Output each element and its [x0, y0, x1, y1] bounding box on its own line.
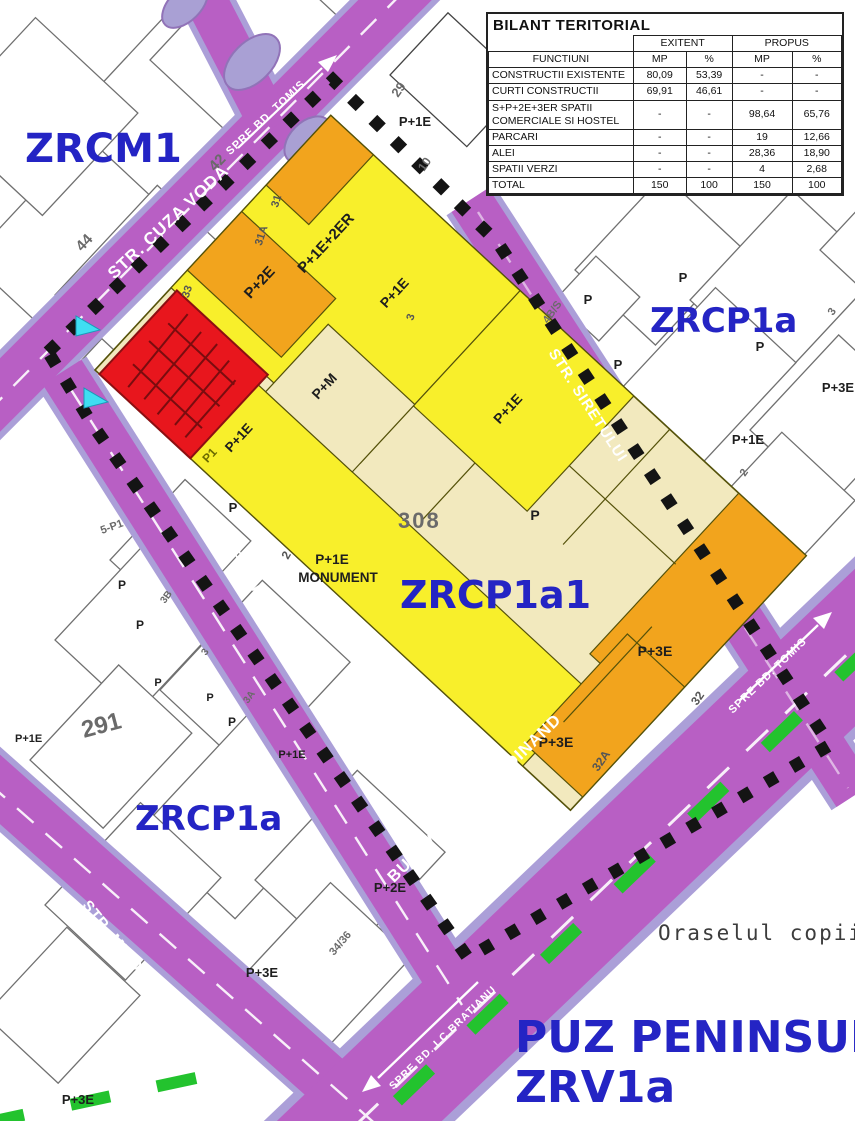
- cell: -: [633, 145, 686, 161]
- table-row: S+P+2E+3ER SPATII COMERCIALE SI HOSTEL -…: [489, 100, 842, 129]
- cell: 2,68: [792, 162, 841, 178]
- table-row: TOTAL 150 100 150 100: [489, 178, 842, 194]
- cell: -: [732, 84, 792, 100]
- table-row: CURTI CONSTRUCTII 69,91 46,61 - -: [489, 84, 842, 100]
- col-mp-proposed: MP: [732, 52, 792, 68]
- parcel-label-p-right: P: [530, 507, 539, 523]
- row-label: CURTI CONSTRUCTII: [489, 84, 634, 100]
- parcel-label-p: P: [756, 339, 765, 354]
- title-zrv1a: ZRV1a: [515, 1062, 675, 1113]
- cell: 100: [686, 178, 732, 194]
- cell: -: [792, 84, 841, 100]
- cell: 19: [732, 129, 792, 145]
- table-row: PARCARI - - 19 12,66: [489, 129, 842, 145]
- row-label: ALEI: [489, 145, 634, 161]
- parcel-label-p-left: P: [229, 500, 238, 515]
- table-blank-cell: [489, 36, 634, 52]
- row-label: TOTAL: [489, 178, 634, 194]
- table-column-header-row: FUNCTIUNI MP % MP %: [489, 52, 842, 68]
- cell: 150: [732, 178, 792, 194]
- parcel-label-p: P: [584, 292, 593, 307]
- row-label: CONSTRUCTII EXISTENTE: [489, 68, 634, 84]
- table-group-header-row: EXITENT PROPUS: [489, 36, 842, 52]
- cell: 150: [633, 178, 686, 194]
- zone-label-zrcp1a1: ZRCP1a1: [400, 573, 591, 617]
- title-puz-peninsula: PUZ PENINSULA: [515, 1012, 855, 1063]
- cell: 53,39: [686, 68, 732, 84]
- cell: 18,90: [792, 145, 841, 161]
- cell: -: [792, 68, 841, 84]
- landmark-oraselul-copiilor: Oraselul copiilor: [658, 921, 855, 945]
- parcel-label-p: P: [228, 715, 236, 729]
- col-pct-proposed: %: [792, 52, 841, 68]
- parcel-label-p1e-right: P+1E: [732, 432, 764, 447]
- col-functiuni: FUNCTIUNI: [489, 52, 634, 68]
- row-label: SPATII VERZI: [489, 162, 634, 178]
- cell: -: [633, 100, 686, 129]
- parcel-label-p: P: [154, 677, 161, 689]
- cell: -: [633, 129, 686, 145]
- parcel-label-p1e-bl2: P+1E: [15, 733, 42, 745]
- cell: 12,66: [792, 129, 841, 145]
- cell: 4: [732, 162, 792, 178]
- row-label: S+P+2E+3ER SPATII COMERCIALE SI HOSTEL: [489, 100, 634, 129]
- table-row: ALEI - - 28,36 18,90: [489, 145, 842, 161]
- parcel-label-p2e-bl: P+2E: [374, 880, 406, 895]
- cell: 46,61: [686, 84, 732, 100]
- cell: -: [686, 129, 732, 145]
- col-pct-existing: %: [686, 52, 732, 68]
- parcel-label-p: P: [118, 578, 126, 592]
- parcel-number-308: 308: [398, 508, 441, 533]
- cell: -: [633, 162, 686, 178]
- zone-label-zrcp1a-bottom: ZRCP1a: [135, 799, 282, 839]
- cell: -: [732, 68, 792, 84]
- col-mp-existing: MP: [633, 52, 686, 68]
- parcel-label-p1e-monument-1: P+1E: [315, 552, 348, 567]
- bilant-teritorial-table: BILANT TERITORIAL EXITENT PROPUS FUNCTIU…: [486, 12, 844, 196]
- parcel-label-p3e-bl1: P+3E: [246, 965, 278, 980]
- parcel-label-p3e-right: P+3E: [822, 380, 854, 395]
- parcel-label-p1e-monument-2: MONUMENT: [298, 570, 378, 585]
- parcel-label-p1e-bl: P+1E: [278, 749, 305, 761]
- cell: 80,09: [633, 68, 686, 84]
- parcel-label-p1e-29: P+1E: [399, 114, 431, 129]
- puz-map: P+2E 31A 31 33 P+1E+2ER P+1E 3 P+1E P+M …: [0, 0, 855, 1121]
- cell: 100: [792, 178, 841, 194]
- cell: 65,76: [792, 100, 841, 129]
- cell: 69,91: [633, 84, 686, 100]
- table-row: CONSTRUCTII EXISTENTE 80,09 53,39 - -: [489, 68, 842, 84]
- parcel-label-p3e-32: P+3E: [638, 643, 673, 659]
- parcel-label-p: P: [614, 357, 623, 372]
- cell: -: [686, 162, 732, 178]
- acces-label: ACCES: [32, 265, 42, 300]
- cell: -: [686, 145, 732, 161]
- zone-label-zrcp1a-right: ZRCP1a: [650, 301, 797, 341]
- row-label: PARCARI: [489, 129, 634, 145]
- table-title: BILANT TERITORIAL: [488, 14, 842, 35]
- table-row: SPATII VERZI - - 4 2,68: [489, 162, 842, 178]
- table-group-existing: EXITENT: [633, 36, 732, 52]
- parcel-label-p3e-bl2: P+3E: [62, 1092, 94, 1107]
- parcel-label-p: P: [206, 692, 213, 704]
- table-group-proposed: PROPUS: [732, 36, 841, 52]
- cell: 98,64: [732, 100, 792, 129]
- parcel-label-p: P: [679, 270, 688, 285]
- cell: 28,36: [732, 145, 792, 161]
- cell: -: [686, 100, 732, 129]
- zone-label-zrcm1: ZRCM1: [25, 126, 182, 172]
- parcel-label-p: P: [136, 618, 144, 632]
